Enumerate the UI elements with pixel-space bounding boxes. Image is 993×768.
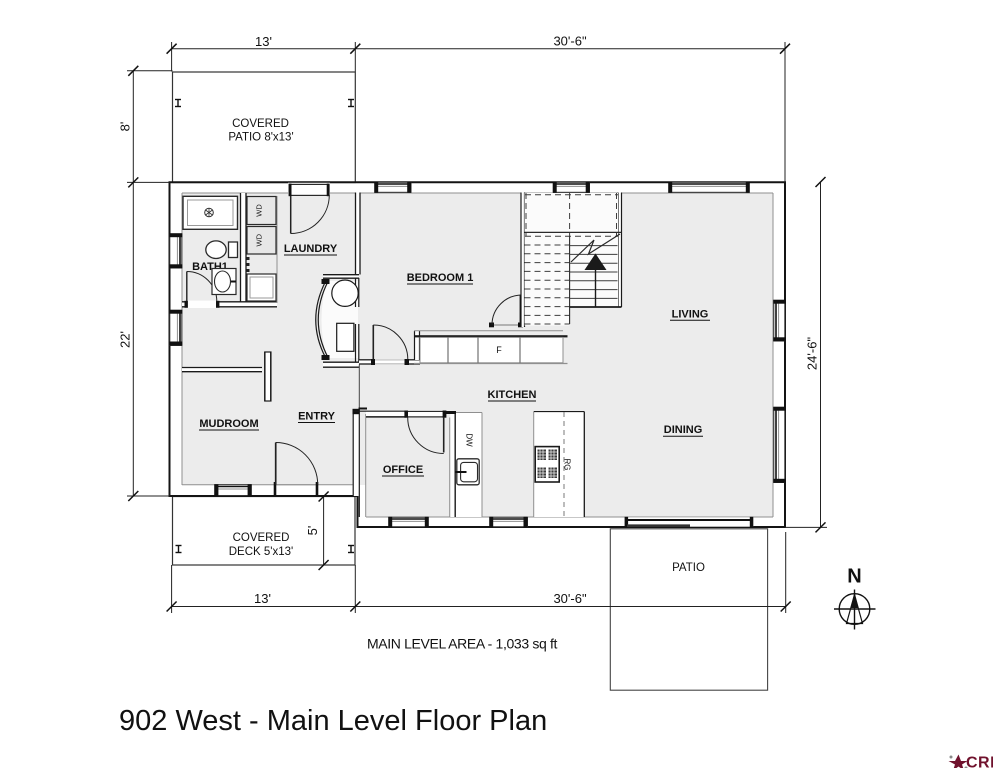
svg-text:30'-6": 30'-6" [553, 591, 587, 606]
svg-text:DINING: DINING [664, 424, 703, 436]
svg-text:LAUNDRY: LAUNDRY [284, 243, 338, 255]
svg-text:COVERED: COVERED [232, 118, 289, 130]
svg-text:22': 22' [118, 331, 133, 348]
svg-text:PATIO 8'x13': PATIO 8'x13' [228, 132, 293, 144]
svg-text:F: F [496, 345, 502, 355]
svg-text:DW: DW [465, 433, 474, 447]
svg-text:MAIN LEVEL AREA - 1,033 sq ft: MAIN LEVEL AREA - 1,033 sq ft [367, 636, 558, 652]
svg-text:LIVING: LIVING [672, 308, 709, 320]
svg-text:24'-6": 24'-6" [805, 337, 820, 371]
svg-text:8': 8' [118, 122, 133, 132]
svg-text:902 West - Main Level Floor Pl: 902 West - Main Level Floor Plan [119, 705, 547, 737]
svg-text:CREN: CREN [966, 755, 993, 768]
svg-text:ENTRY: ENTRY [298, 411, 336, 423]
svg-text:OFFICE: OFFICE [383, 464, 423, 476]
svg-text:30'-6": 30'-6" [553, 34, 587, 49]
svg-text:5': 5' [305, 526, 320, 536]
svg-text:MUDROOM: MUDROOM [199, 418, 258, 430]
svg-text:BEDROOM 1: BEDROOM 1 [407, 272, 474, 284]
svg-text:WD: WD [255, 233, 264, 246]
svg-text:RG: RG [563, 459, 572, 471]
svg-text:PATIO: PATIO [672, 562, 705, 574]
svg-text:13': 13' [254, 591, 271, 606]
svg-text:DECK 5'x13': DECK 5'x13' [229, 546, 293, 558]
svg-text:13': 13' [255, 34, 272, 49]
svg-text:WD: WD [255, 204, 264, 217]
svg-text:COVERED: COVERED [233, 532, 290, 544]
svg-text:KITCHEN: KITCHEN [488, 389, 537, 401]
svg-text:N: N [847, 566, 861, 588]
